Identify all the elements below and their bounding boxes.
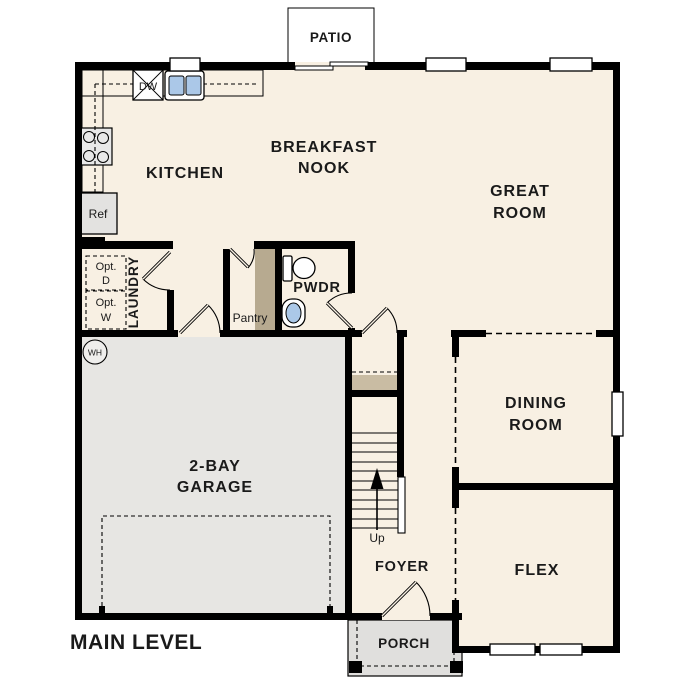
flex-window-left xyxy=(490,644,535,655)
room-label-kitchen: KITCHEN xyxy=(146,165,224,182)
kitchen-sink-icon xyxy=(165,71,204,100)
stair-handrail xyxy=(398,477,405,533)
floorplan-page: WH DW Ref Opt. D Opt. W xyxy=(0,0,687,687)
room-label-garage-line1: 2-BAY xyxy=(189,458,241,475)
porch-post-right xyxy=(450,661,463,673)
floorplan-drawing: WH DW Ref Opt. D Opt. W xyxy=(0,0,687,687)
stair-up-label: Up xyxy=(369,531,385,545)
room-label-laundry: LAUNDRY xyxy=(126,256,141,329)
room-label-great-room-line2: ROOM xyxy=(493,205,547,222)
refrigerator-label: Ref xyxy=(89,207,108,221)
garage-floor xyxy=(82,337,345,613)
powder-sink-icon xyxy=(282,299,305,327)
cooktop-icon xyxy=(80,128,112,165)
plan-title: MAIN LEVEL xyxy=(70,631,202,654)
dishwasher-icon: DW xyxy=(133,70,163,100)
room-label-dining-line2: ROOM xyxy=(509,417,563,434)
room-label-patio: PATIO xyxy=(310,30,352,45)
room-label-dining-line1: DINING xyxy=(505,395,567,412)
dining-window xyxy=(612,392,623,436)
water-heater-icon: WH xyxy=(83,340,107,364)
room-label-foyer: FOYER xyxy=(375,559,429,575)
toilet-icon xyxy=(283,256,315,281)
water-heater-label: WH xyxy=(88,348,102,358)
great-room-window-right xyxy=(550,58,592,71)
room-label-breakfast-nook-line1: BREAKFAST xyxy=(271,139,378,156)
room-label-flex: FLEX xyxy=(515,562,560,579)
opt-washer-line2: W xyxy=(101,312,112,324)
room-label-pwdr: PWDR xyxy=(293,280,341,296)
refrigerator-icon: Ref xyxy=(80,193,117,234)
room-label-porch: PORCH xyxy=(378,636,430,651)
room-label-pantry: Pantry xyxy=(233,311,268,325)
opt-washer-line1: Opt. xyxy=(96,297,117,309)
great-room-window-left xyxy=(426,58,466,71)
room-label-great-room-line1: GREAT xyxy=(490,183,550,200)
flex-window-right xyxy=(540,644,582,655)
room-label-breakfast-nook-line2: NOOK xyxy=(298,160,350,177)
dishwasher-label: DW xyxy=(139,81,158,93)
kitchen-window xyxy=(170,58,200,71)
room-label-garage-line2: GARAGE xyxy=(177,479,253,496)
opt-dryer-line2: D xyxy=(102,275,110,287)
flex-dining-floor xyxy=(452,337,620,653)
porch-post-left xyxy=(349,661,362,673)
opt-dryer-line1: Opt. xyxy=(96,261,117,273)
